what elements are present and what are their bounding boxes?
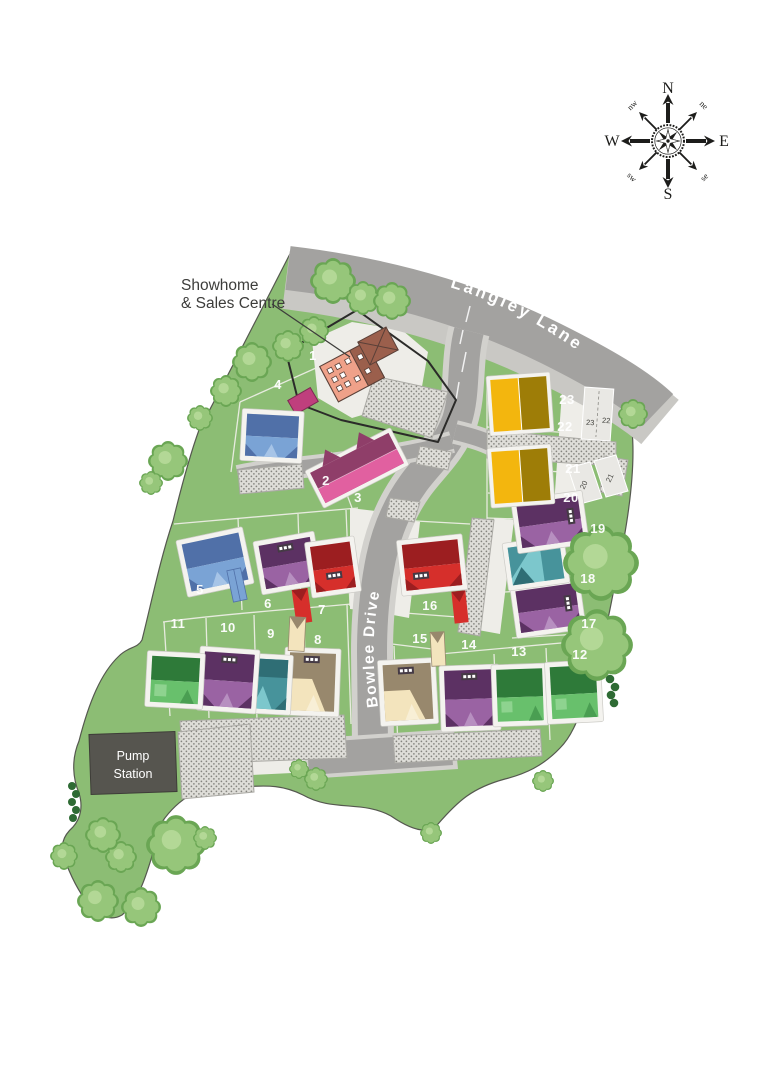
plot-label-6[interactable]: 6 <box>264 596 272 611</box>
plot-label-20[interactable]: 20 <box>563 490 578 505</box>
plot-22-body <box>490 378 522 432</box>
bay-label-23: 23 <box>586 418 595 428</box>
plot-label-12[interactable]: 12 <box>572 647 587 662</box>
plot-label-15[interactable]: 15 <box>412 631 427 646</box>
plot-15-house[interactable] <box>377 658 438 727</box>
plot-label-9[interactable]: 9 <box>267 626 275 641</box>
plot-label-18[interactable]: 18 <box>580 571 595 586</box>
compass-n: N <box>662 80 674 97</box>
plot-label-14[interactable]: 14 <box>461 637 477 652</box>
plot-label-13[interactable]: 13 <box>511 644 526 659</box>
plot-4-house[interactable] <box>240 408 305 463</box>
plot-label-7[interactable]: 7 <box>318 602 326 617</box>
plot-label-4[interactable]: 4 <box>274 377 282 392</box>
plot-8-gable <box>288 617 306 652</box>
plot-label-23[interactable]: 23 <box>559 392 574 407</box>
plot-label-11[interactable]: 11 <box>171 616 186 631</box>
window-strip <box>461 673 477 681</box>
bay-label-22: 22 <box>602 416 611 426</box>
plot-label-17[interactable]: 17 <box>581 616 596 631</box>
pump-station-building <box>89 732 177 795</box>
plot-label-16[interactable]: 16 <box>422 598 437 613</box>
window-strip <box>398 667 414 675</box>
plot-15-gable <box>430 632 446 667</box>
plot-11-house[interactable] <box>145 651 206 710</box>
plot-label-2[interactable]: 2 <box>322 473 330 488</box>
plot-16-house[interactable] <box>396 534 467 597</box>
roof <box>151 656 200 682</box>
compass-center <box>666 139 669 142</box>
plot-22-23-pair[interactable] <box>486 372 554 436</box>
plot-20-21-pair[interactable] <box>487 444 555 508</box>
plot-21-body <box>519 448 551 502</box>
plot-label-1[interactable]: 1 <box>309 348 317 363</box>
detail <box>154 684 167 697</box>
plot-label-5[interactable]: 5 <box>196 582 204 597</box>
site-plan-page: 23 22 20 21 <box>0 0 773 1080</box>
showhome-label-1: Showhome <box>181 277 259 294</box>
plot-7-house[interactable] <box>304 536 361 598</box>
plot-label-22[interactable]: 22 <box>557 419 572 434</box>
plot-label-21[interactable]: 21 <box>565 461 580 476</box>
plot-label-8[interactable]: 8 <box>314 632 322 647</box>
detail <box>555 698 567 710</box>
window-strip <box>304 656 320 664</box>
plot-label-3[interactable]: 3 <box>354 490 362 505</box>
compass-e: E <box>719 133 729 150</box>
showhome-label-2: & Sales Centre <box>181 295 285 312</box>
compass-s: S <box>664 186 673 203</box>
plot-13-house[interactable] <box>491 663 549 727</box>
bay-22-23 <box>581 387 614 441</box>
plot-label-10[interactable]: 10 <box>220 620 235 635</box>
pump-station-label-2: Station <box>114 767 153 781</box>
plot-label-19[interactable]: 19 <box>590 521 605 536</box>
site-plan-svg: 23 22 20 21 <box>0 0 773 1080</box>
window-strip <box>221 656 237 664</box>
roof <box>246 414 299 439</box>
roof <box>496 668 543 698</box>
compass-w: W <box>604 133 620 150</box>
pump-station-label-1: Pump <box>117 749 150 763</box>
detail <box>501 701 512 712</box>
plot-20-body <box>491 450 523 504</box>
plot-23-body <box>518 376 550 430</box>
pump-station[interactable]: Pump Station <box>89 732 177 795</box>
road-table-2 <box>386 498 420 522</box>
pump-access-hatch <box>178 724 254 799</box>
